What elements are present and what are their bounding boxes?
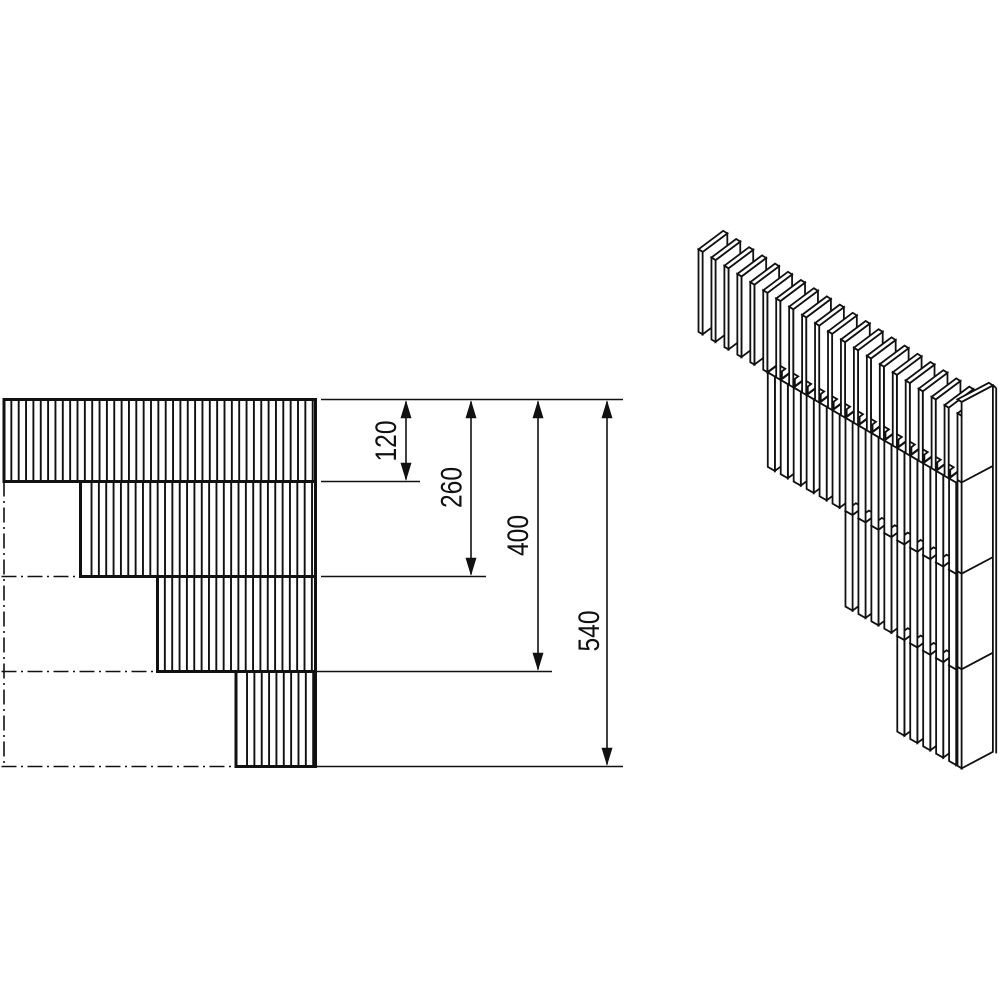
svg-text:400: 400 xyxy=(502,515,535,556)
svg-text:540: 540 xyxy=(573,611,606,652)
svg-text:260: 260 xyxy=(436,467,469,508)
svg-text:120: 120 xyxy=(370,421,403,462)
